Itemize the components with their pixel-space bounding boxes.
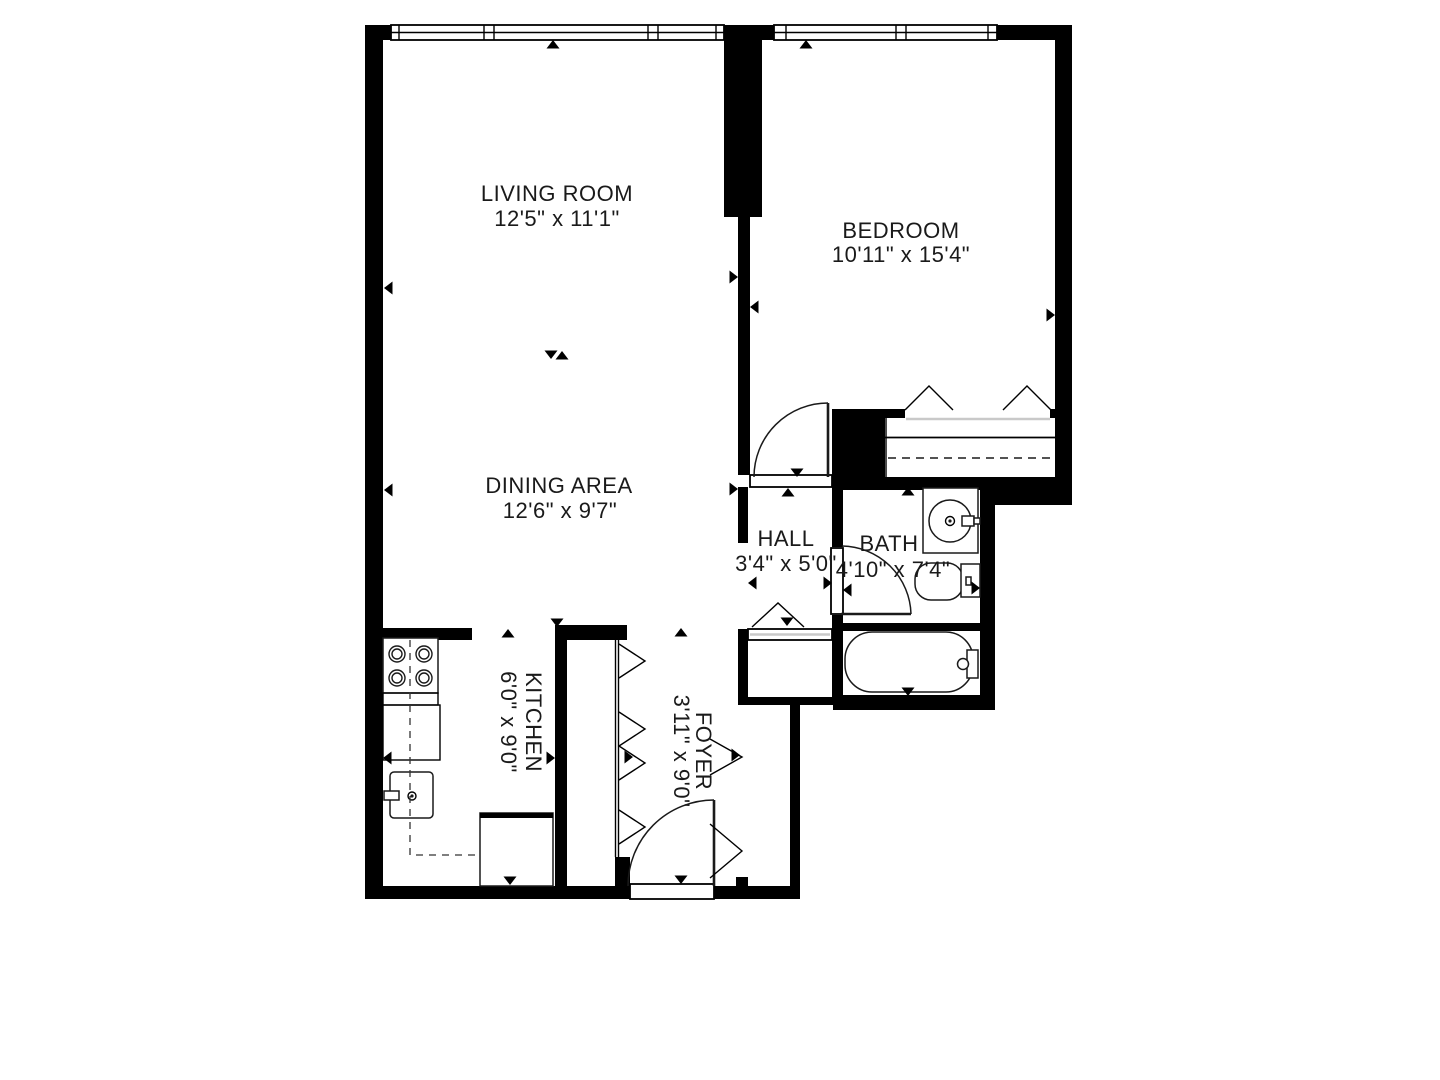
accordion-door-icon [619,712,645,780]
bathtub-icon [845,632,978,692]
bath-label: BATH [859,531,918,556]
floor-plan-drawing: LIVING ROOM 12'5" x 11'1" BEDROOM 10'11"… [0,0,1440,1080]
hall-dims: 3'4" x 5'0" [735,551,837,576]
refrigerator-icon [480,813,553,886]
kitchen-label: KITCHEN [521,672,546,772]
kitchen-dims: 6'0" x 9'0" [496,671,521,773]
bath-fixtures [845,488,980,692]
dimension-arrows [383,40,1055,885]
bath-dims: 4'10" x 7'4" [836,557,950,582]
hall-closet [752,603,804,627]
counter [383,705,440,760]
bedroom-door [754,403,828,477]
walls [365,25,1072,899]
bifold-door-icon [905,386,953,410]
bifold-door-icon [752,603,804,627]
window-band-living-room [391,25,724,40]
bifold-door-icon [1003,386,1051,410]
floor-plan: LIVING ROOM 12'5" x 11'1" BEDROOM 10'11"… [0,0,1440,1080]
dining-area-label: DINING AREA [485,473,632,498]
room-labels: LIVING ROOM 12'5" x 11'1" BEDROOM 10'11"… [481,181,970,807]
bathroom-sink-icon [923,488,980,553]
bedroom-closet [885,386,1055,477]
living-room-dims: 12'5" x 11'1" [494,206,620,231]
dining-area-dims: 12'6" x 9'7" [503,498,617,523]
living-room-label: LIVING ROOM [481,181,633,206]
accordion-door-icon [619,644,645,678]
window-band-bedroom [774,25,997,40]
bedroom-door-threshold [750,475,832,487]
accordion-door-icon [619,810,645,844]
hall-label: HALL [757,526,814,551]
kitchen-sink-icon [384,772,433,818]
foyer-dims: 3'11" x 9'0" [669,695,694,808]
bedroom-label: BEDROOM [842,218,959,243]
bedroom-dims: 10'11" x 15'4" [832,242,970,267]
entry-door [628,800,714,886]
entry-door-threshold [630,884,714,899]
